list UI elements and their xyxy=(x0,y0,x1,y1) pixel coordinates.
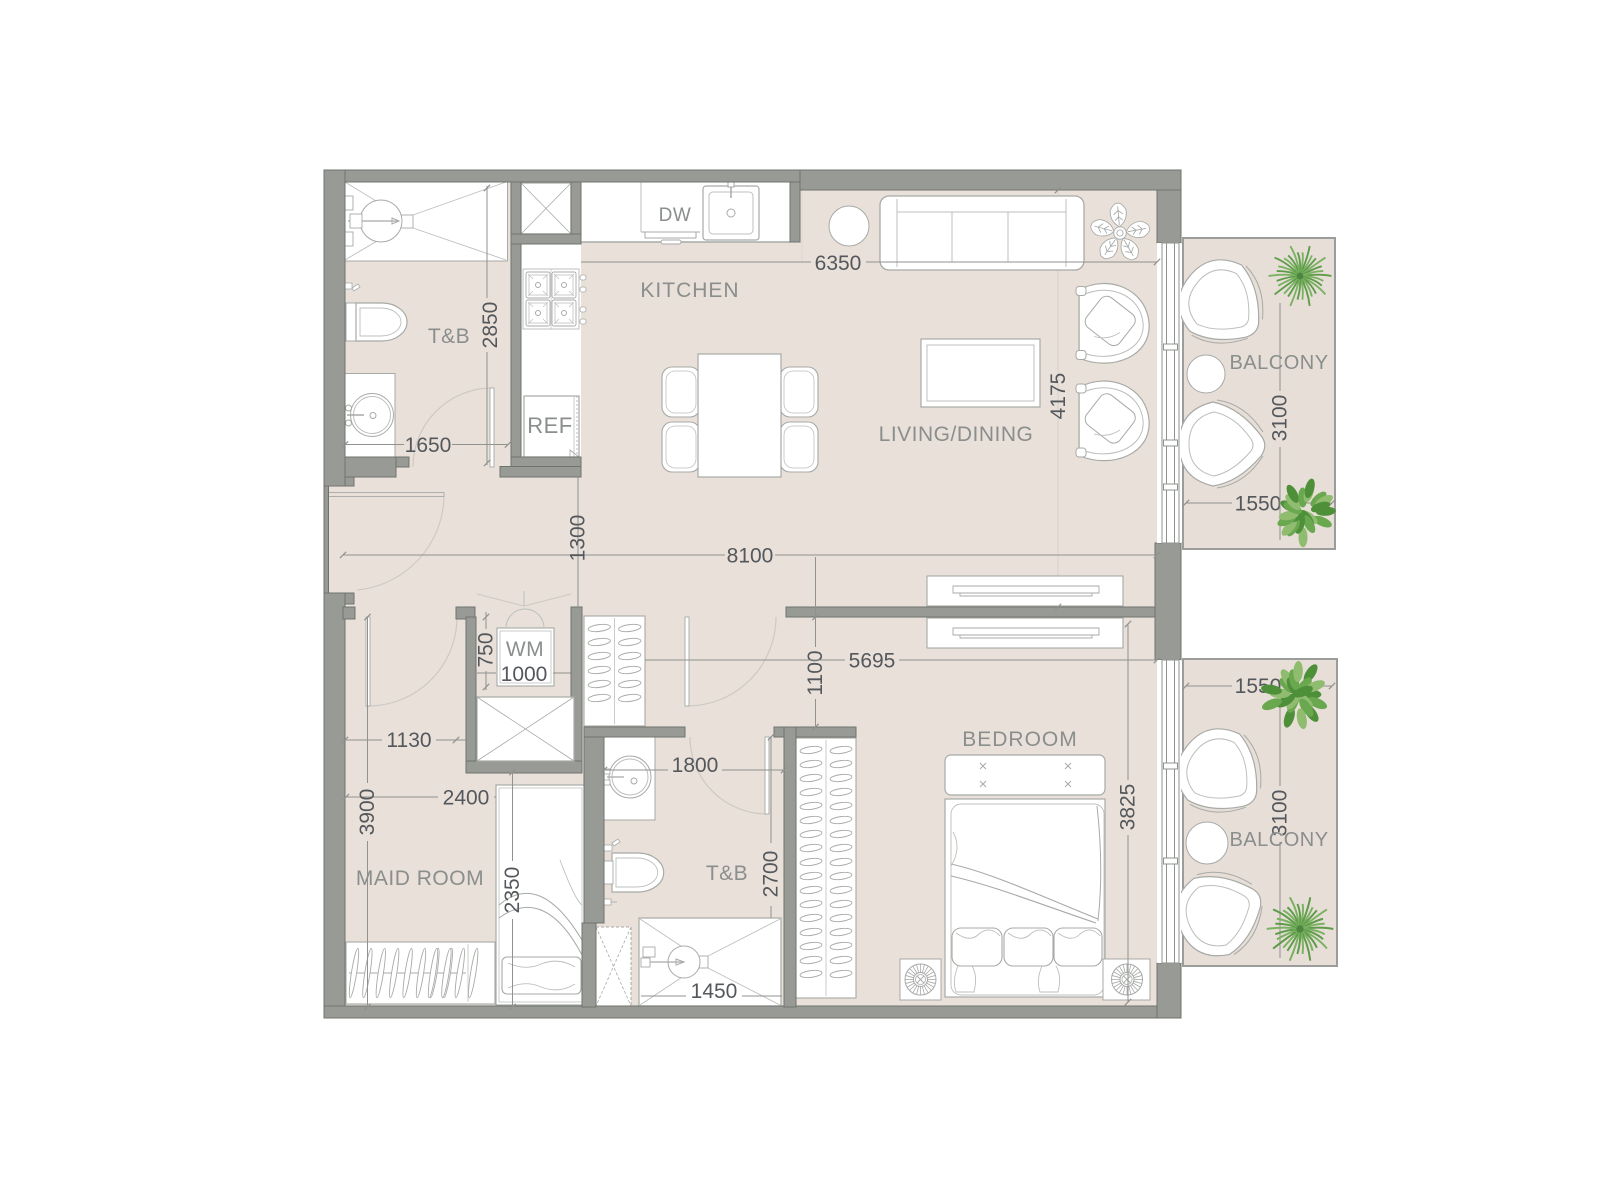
svg-text:2850: 2850 xyxy=(479,302,502,349)
svg-text:1000: 1000 xyxy=(501,663,548,686)
svg-text:1300: 1300 xyxy=(567,515,590,562)
svg-text:KITCHEN: KITCHEN xyxy=(640,279,739,302)
svg-text:MAID ROOM: MAID ROOM xyxy=(356,867,484,890)
svg-text:WM: WM xyxy=(506,638,544,661)
svg-text:BALCONY: BALCONY xyxy=(1229,829,1328,851)
svg-text:2700: 2700 xyxy=(760,851,783,898)
svg-text:1550: 1550 xyxy=(1235,493,1282,516)
svg-text:2350: 2350 xyxy=(501,867,524,914)
svg-text:BALCONY: BALCONY xyxy=(1229,352,1328,374)
svg-text:DW: DW xyxy=(659,205,692,226)
svg-text:3100: 3100 xyxy=(1269,395,1292,442)
svg-text:T&B: T&B xyxy=(706,862,748,885)
svg-text:2400: 2400 xyxy=(443,787,490,810)
svg-text:1100: 1100 xyxy=(804,650,827,695)
svg-text:T&B: T&B xyxy=(428,325,470,348)
svg-text:REF: REF xyxy=(527,413,573,438)
svg-text:6350: 6350 xyxy=(815,252,862,275)
svg-text:1450: 1450 xyxy=(691,980,738,1003)
svg-text:1130: 1130 xyxy=(386,729,431,752)
svg-text:4175: 4175 xyxy=(1047,373,1070,420)
svg-text:1800: 1800 xyxy=(672,754,719,777)
svg-text:5695: 5695 xyxy=(849,650,896,673)
svg-text:3825: 3825 xyxy=(1117,784,1140,831)
svg-text:1650: 1650 xyxy=(405,434,452,457)
svg-text:3900: 3900 xyxy=(356,789,379,836)
svg-text:8100: 8100 xyxy=(727,545,774,568)
svg-text:BEDROOM: BEDROOM xyxy=(962,728,1078,751)
svg-text:LIVING/DINING: LIVING/DINING xyxy=(879,423,1034,446)
svg-text:750: 750 xyxy=(475,632,498,667)
